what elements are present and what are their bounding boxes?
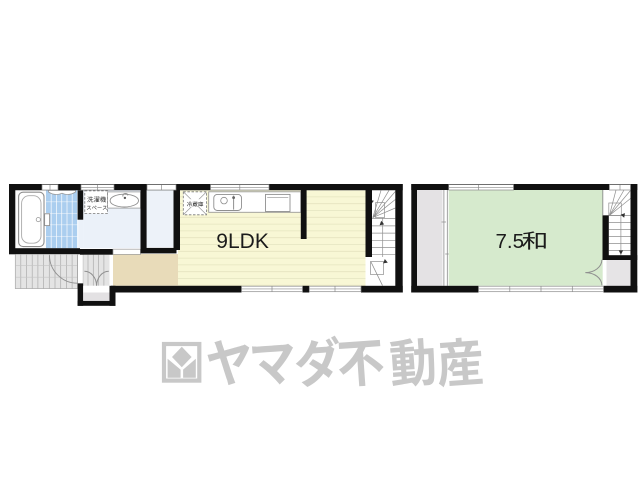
svg-text:7.5: 7.5 bbox=[496, 230, 525, 253]
svg-text:9LDK: 9LDK bbox=[216, 230, 269, 253]
